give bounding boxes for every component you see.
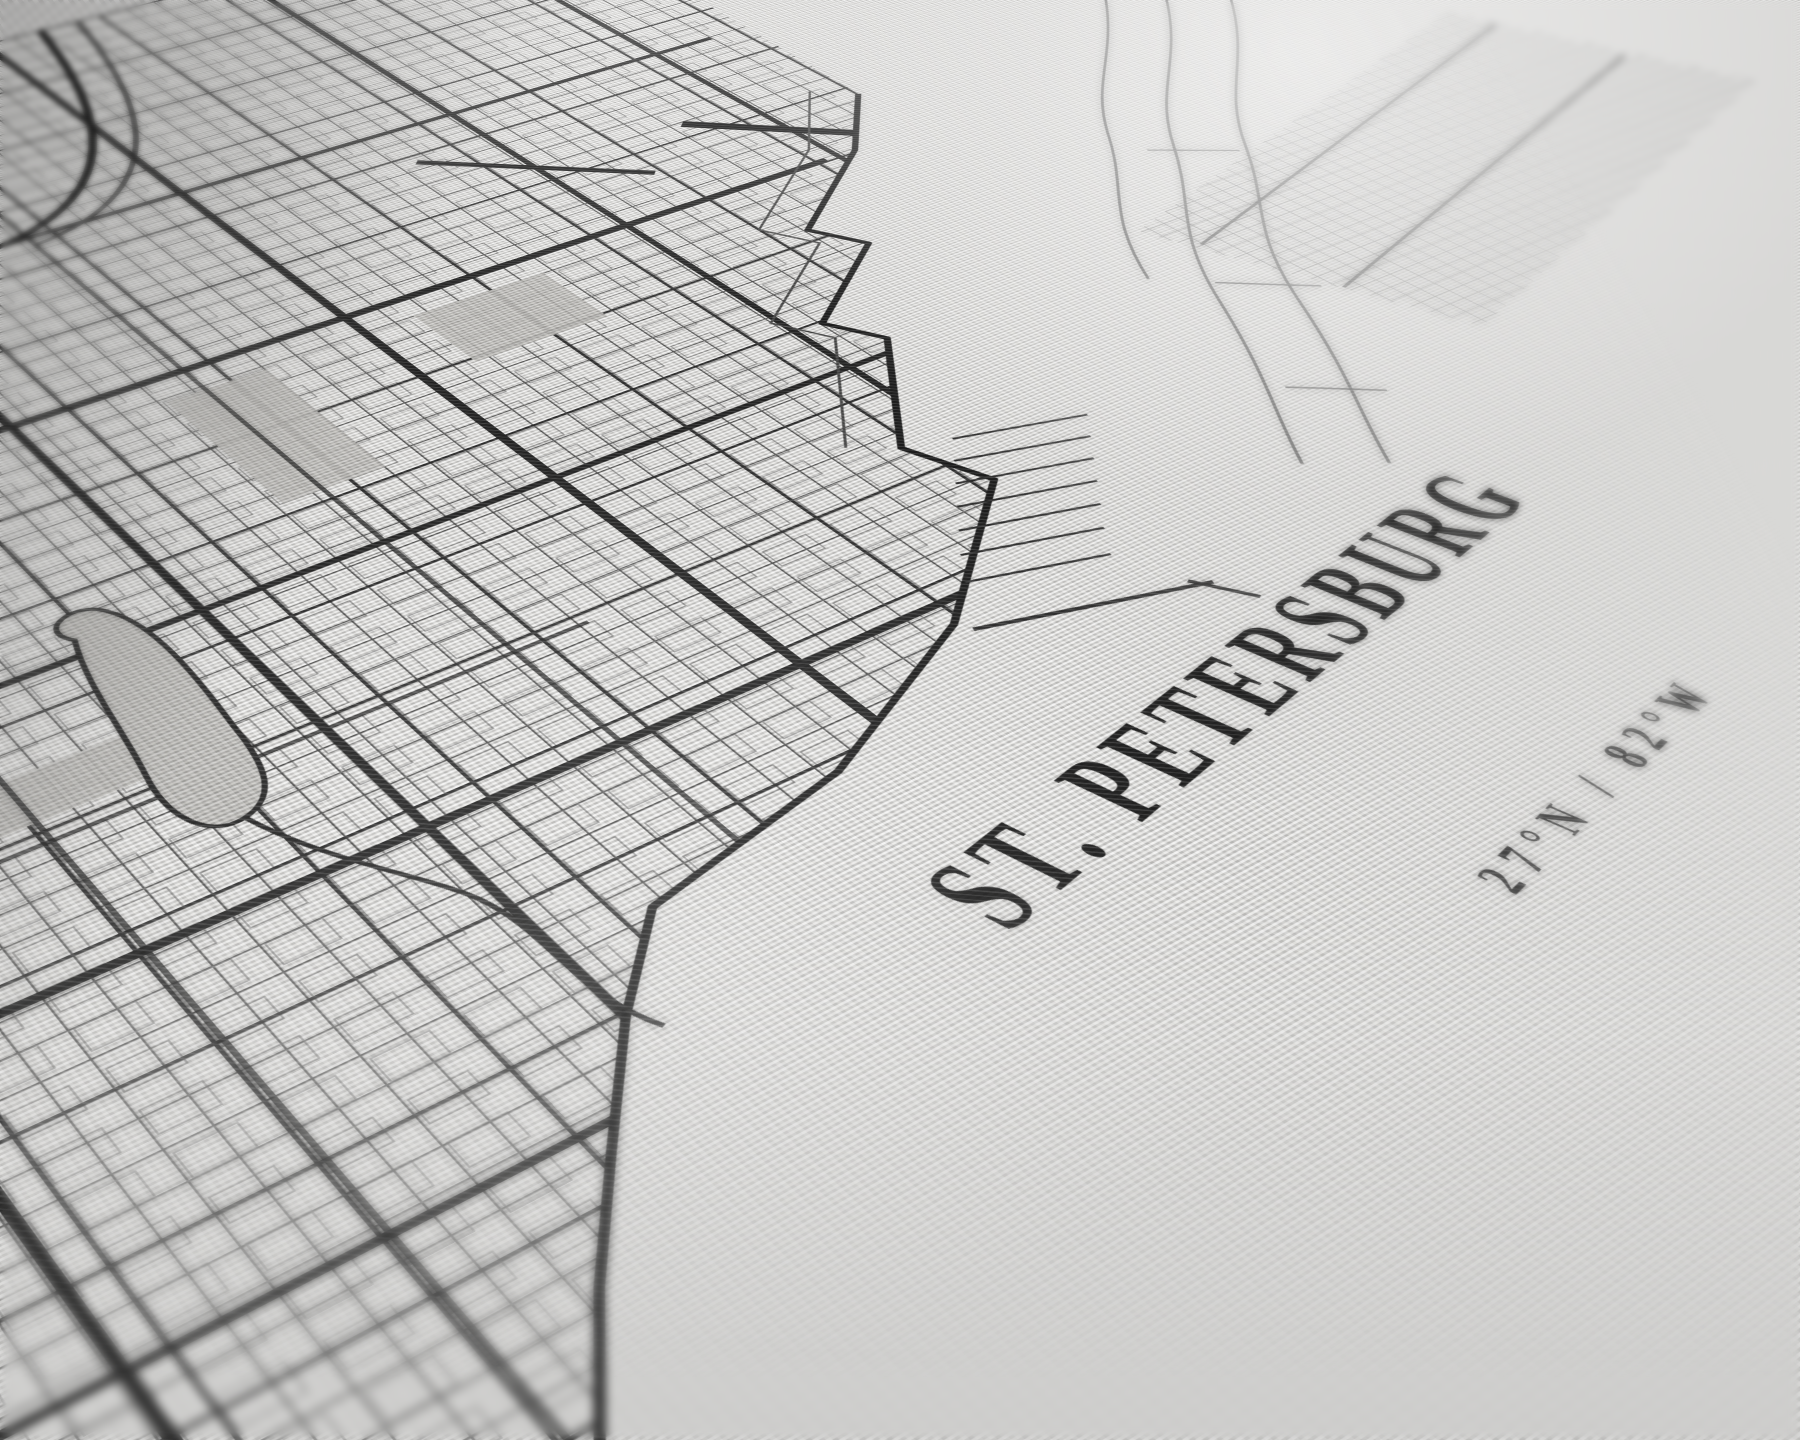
- canvas-print: ST. PETERSBURG 27°N / 82°W: [0, 0, 1800, 1440]
- canvas-weave-texture: [0, 0, 1800, 1440]
- photo-of-canvas-map-print: ST. PETERSBURG 27°N / 82°W: [0, 0, 1800, 1440]
- perspective-scene: ST. PETERSBURG 27°N / 82°W: [0, 0, 1800, 1440]
